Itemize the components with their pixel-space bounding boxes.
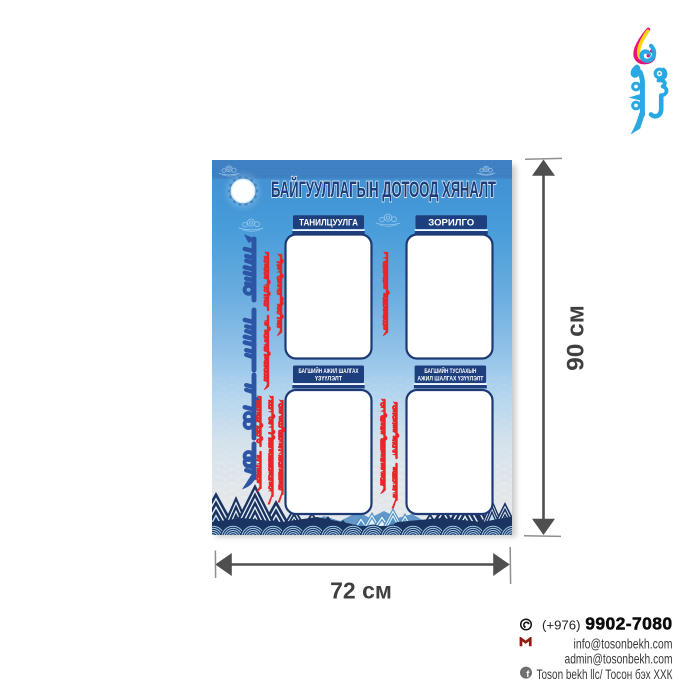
svg-text:БАГШИЙН АЖИЛ ШАЛГАХ: БАГШИЙН АЖИЛ ШАЛГАХ xyxy=(299,366,360,375)
svg-text:Toson bekh llc/ Тосон бэх ХХК: Toson bekh llc/ Тосон бэх ХХК xyxy=(537,667,673,682)
svg-text:admin@tosonbekh.com: admin@tosonbekh.com xyxy=(565,651,673,667)
svg-text:АЖИЛ ШАЛГАХ ҮЗҮҮЛЭЛТ: АЖИЛ ШАЛГАХ ҮЗҮҮЛЭЛТ xyxy=(417,375,483,382)
svg-text:ТАНИЛЦУУЛГА: ТАНИЛЦУУЛГА xyxy=(299,217,358,227)
svg-text:БАЙГУУЛЛАГЫН ДОТООД ХЯНАЛТ: БАЙГУУЛЛАГЫН ДОТООД ХЯНАЛТ xyxy=(271,177,496,202)
svg-text:ҮЗҮҮЛЭЛТ: ҮЗҮҮЛЭЛТ xyxy=(315,375,342,382)
svg-text:9902-7080: 9902-7080 xyxy=(585,614,672,634)
svg-text:ЗОРИЛГО: ЗОРИЛГО xyxy=(428,217,474,227)
svg-text:info@tosonbekh.com: info@tosonbekh.com xyxy=(574,635,673,651)
svg-text:90 см: 90 см xyxy=(563,305,590,371)
svg-text:БАГШИЙН ТУСЛАХЫН: БАГШИЙН ТУСЛАХЫН xyxy=(424,366,476,375)
svg-text:72 см: 72 см xyxy=(330,578,392,604)
svg-text:(+976): (+976) xyxy=(542,618,581,633)
